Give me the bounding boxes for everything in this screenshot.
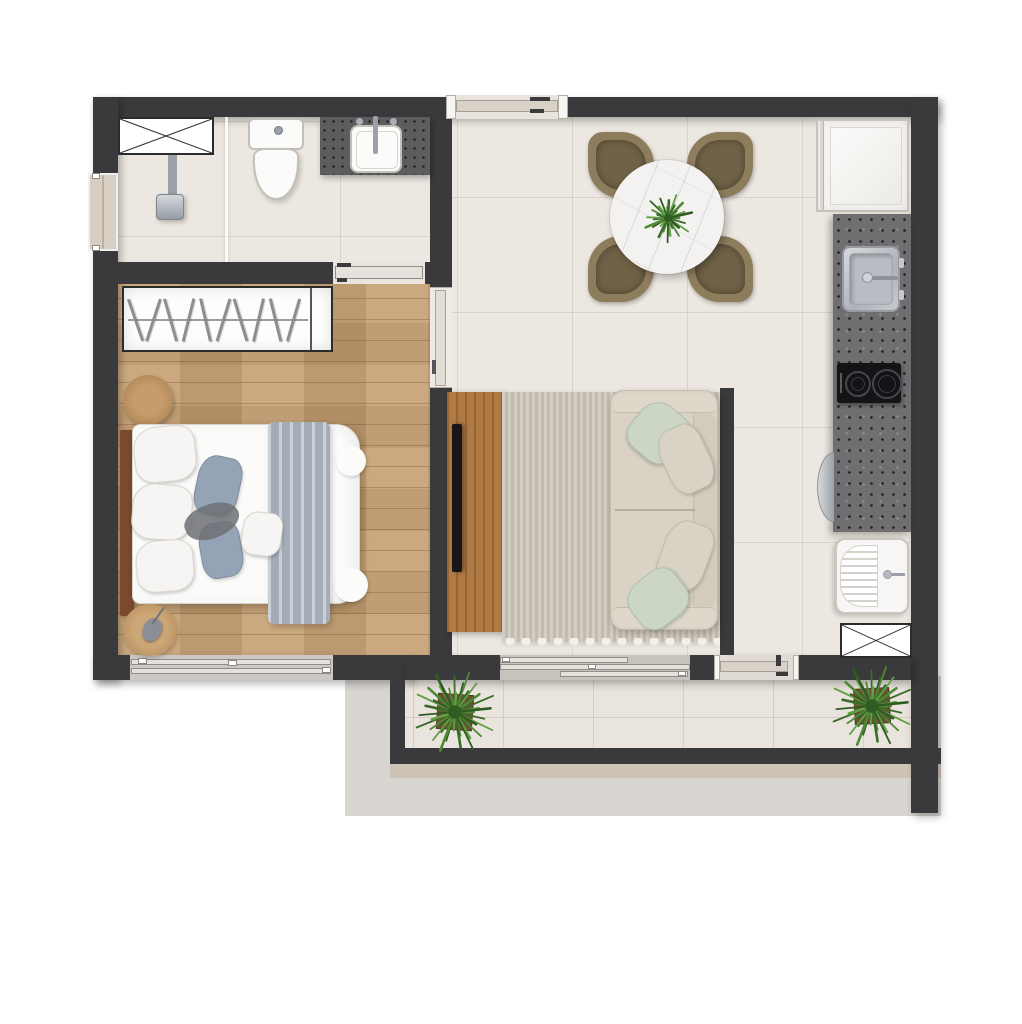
entry-door	[446, 95, 568, 119]
cooktop-burner	[872, 369, 902, 399]
wardrobe-divider	[310, 288, 312, 350]
bathroom-sliding-door	[333, 262, 425, 284]
hanger-icon	[233, 299, 249, 342]
hanger-icon	[127, 299, 144, 342]
hanger-icon	[269, 298, 283, 341]
bedroom-sliding-door	[430, 287, 452, 388]
parapet-cap-band	[390, 764, 941, 778]
laundry-tank	[835, 538, 909, 614]
shower-arm	[168, 155, 177, 197]
wardrobe	[122, 286, 333, 352]
toilet-flush-button	[274, 126, 283, 135]
shaft-cross-icon	[842, 625, 910, 656]
bathroom-window-handle	[92, 173, 100, 179]
entry-door-jamb-left	[446, 95, 456, 119]
sofa	[610, 390, 718, 630]
cooktop	[837, 363, 901, 403]
bathroom-door-panel	[335, 266, 423, 279]
bedroom-window-handle	[138, 658, 147, 664]
hanger-icon	[181, 298, 195, 341]
balcony-door-panel	[500, 657, 628, 663]
bedroom-window-handle	[322, 667, 331, 673]
refrigerator	[816, 119, 909, 212]
hanger-icon	[215, 299, 231, 342]
kitchen-balcony-door-jamb	[793, 655, 799, 680]
bathroom-faucet	[373, 116, 378, 154]
wall-balcony-left	[390, 680, 405, 757]
balcony-sliding-door	[500, 655, 690, 680]
balcony-plant-left	[415, 672, 495, 752]
hanger-icon	[285, 298, 300, 341]
shaft-cross-icon	[120, 119, 212, 153]
tv	[452, 424, 462, 572]
double-bed	[118, 418, 364, 630]
shower-head	[156, 194, 184, 220]
entry-door-handle	[530, 109, 544, 113]
bedroom-door-panel	[435, 290, 446, 386]
bed-pillow	[130, 481, 195, 542]
bathroom-window-handle	[92, 245, 100, 251]
floor-plan	[0, 0, 1022, 1024]
bedroom-round-rug	[123, 604, 177, 656]
kitchen-faucet-head	[862, 272, 873, 283]
hanger-icon	[199, 298, 212, 342]
table-plant	[638, 188, 698, 248]
rug-decor-object	[138, 615, 165, 645]
sofa-seat-divider	[615, 509, 695, 511]
kitchen-balcony-door	[714, 655, 799, 680]
bedroom-window-handle	[228, 660, 237, 666]
kitchen-balcony-door-handle	[776, 672, 788, 676]
entry-door-jamb-right	[558, 95, 568, 119]
bed-pillow	[134, 538, 195, 594]
refrigerator-door-line	[820, 121, 824, 210]
wall-sofa-stub	[720, 388, 734, 657]
kitchen-faucet-knob	[899, 290, 904, 300]
bed-pillow	[131, 423, 199, 485]
duvet-fold	[334, 568, 368, 602]
bathroom-window	[88, 173, 118, 251]
laundry-tank-spout	[891, 573, 905, 576]
kitchen-balcony-door-handle	[776, 655, 781, 666]
hanger-icon	[252, 298, 265, 342]
bedroom-window-track	[131, 668, 331, 674]
wardrobe-hangers	[130, 296, 308, 344]
hanger-icon	[145, 299, 161, 342]
bathroom-faucet-knob	[356, 118, 363, 125]
shower-screen	[225, 117, 228, 262]
wall-right	[911, 97, 938, 813]
bathroom-faucet-knob	[390, 118, 397, 125]
bathroom-window-mullion	[102, 175, 104, 249]
duvet-fold	[336, 446, 366, 476]
laundry-tank-washboard	[840, 545, 878, 607]
bedroom-door-handle	[432, 360, 436, 374]
refrigerator-inner	[830, 127, 902, 205]
vent-shaft-kitchen	[840, 623, 912, 658]
vent-shaft-bathroom	[118, 117, 214, 155]
balcony-door-panel	[560, 671, 688, 677]
balcony-door-handle	[588, 664, 596, 669]
balcony-door-handle	[678, 671, 686, 676]
bedroom-window	[130, 655, 333, 680]
cooktop-controls	[840, 373, 842, 393]
balcony-plant-right	[832, 666, 912, 746]
bathroom-door-handle	[337, 278, 347, 282]
balcony-door-handle	[502, 657, 510, 662]
bathroom-door-handle	[337, 263, 351, 267]
hanger-icon	[163, 298, 178, 341]
cooktop-burner	[845, 371, 871, 397]
toilet-tank	[248, 118, 304, 150]
kitchen-faucet-knob	[899, 258, 904, 268]
entry-door-handle	[530, 97, 550, 101]
